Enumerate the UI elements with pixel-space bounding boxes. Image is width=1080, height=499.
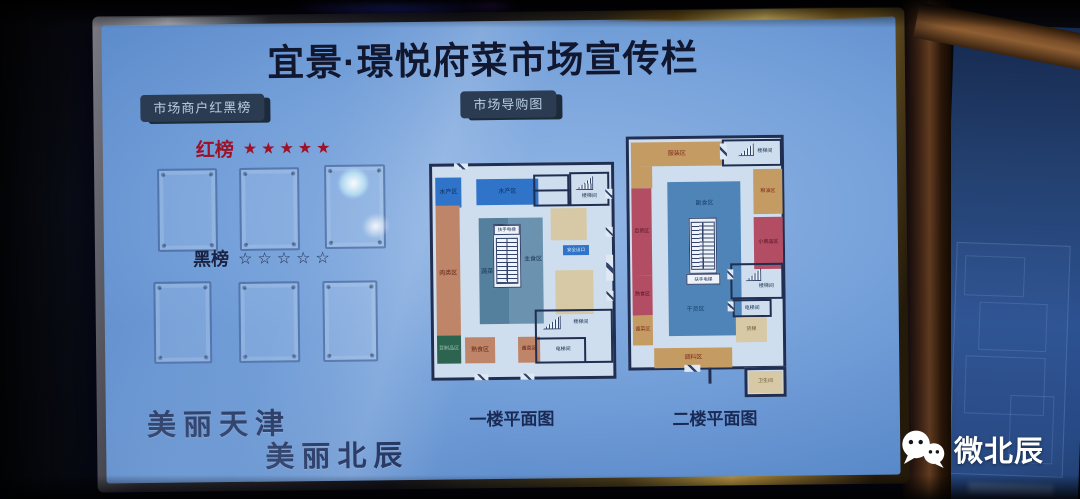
display-slot <box>239 167 300 251</box>
floor2-plan: 服装区 楼梯间 粮油区 小商品区 百货区 熟食区 酱菜区 调料区 副食区 干货区… <box>626 135 791 399</box>
door-marker <box>605 189 612 199</box>
plan-room-cooked-food: 熟食区 <box>632 275 652 315</box>
slogan-beichen: 美丽北辰 <box>265 432 409 476</box>
plan-room-general-goods: 百货区 <box>631 188 652 275</box>
glare-overlay <box>314 159 396 254</box>
display-slot <box>238 281 300 363</box>
watermark: 微北辰 <box>900 428 1044 470</box>
plan-room-toilet: 卫生间 <box>748 371 782 393</box>
plan-room-grain-oil: 粮油区 <box>753 169 783 214</box>
plan-room-label: 主食区 <box>523 254 543 263</box>
watermark-label: 微北辰 <box>954 428 1044 470</box>
door-marker <box>606 291 613 301</box>
plan-room-label: 电梯间 <box>546 345 580 352</box>
door-marker <box>606 227 613 237</box>
plan-room-label: 楼梯间 <box>750 147 780 154</box>
plan-room-freight-lift: 货梯 <box>736 317 767 342</box>
ghost-caption-smudge <box>968 482 1053 496</box>
door-marker <box>520 374 534 380</box>
black-list-stars: ☆☆☆☆☆ <box>238 246 335 268</box>
black-list-label: 黑榜 <box>193 245 229 271</box>
plan-room <box>631 166 652 188</box>
plan-room-label: 楼梯间 <box>751 282 781 289</box>
floor2-caption: 二楼平面图 <box>635 404 795 431</box>
display-slot <box>322 280 378 362</box>
wall <box>708 368 711 384</box>
plan-room-label: 楼梯间 <box>569 192 609 199</box>
plan-room-small-goods: 小商品区 <box>754 217 784 269</box>
guide-map-badge: 市场导购图 <box>460 90 556 118</box>
exit-sign: 安全出口 <box>563 245 589 255</box>
door-marker <box>454 163 468 169</box>
plan-room-cooked-food: 熟食区 <box>465 337 495 363</box>
plan-room-aquatic: 水产区 <box>476 179 538 206</box>
plan-room-tofu: 豆制品区 <box>437 335 461 363</box>
photo-of-bulletin-board: 宜景·璟悦府菜市场宣传栏 市场商户红黑榜 红榜 ★★★★★ 黑榜 ☆☆☆☆☆ 美… <box>0 0 1080 499</box>
board-face: 宜景·璟悦府菜市场宣传栏 市场商户红黑榜 红榜 ★★★★★ 黑榜 ☆☆☆☆☆ 美… <box>101 17 900 484</box>
plan-room <box>555 270 593 314</box>
door-marker <box>606 255 613 281</box>
floor1-caption: 一楼平面图 <box>432 404 592 431</box>
display-slot <box>157 168 218 252</box>
stairs-icon <box>691 222 716 270</box>
door-marker <box>684 365 700 372</box>
board-title: 宜景·璟悦府菜市场宣传栏 <box>233 27 734 87</box>
wood-pillar <box>903 0 951 499</box>
door-marker <box>728 301 734 311</box>
bulletin-board: 宜景·璟悦府菜市场宣传栏 市场商户红黑榜 红榜 ★★★★★ 黑榜 ☆☆☆☆☆ 美… <box>92 7 909 492</box>
plan-room-label: 楼梯间 <box>564 318 598 325</box>
wechat-icon <box>900 429 946 469</box>
plan-room-label: 电梯间 <box>736 304 769 311</box>
escalator-label: 扶手电梯 <box>686 274 720 285</box>
door-marker <box>474 374 488 380</box>
plan-room-aquatic: 水产区 <box>435 177 461 207</box>
plan-room-meat: 肉类区 <box>435 205 461 341</box>
red-list-row: 红榜 ★★★★★ <box>196 134 335 163</box>
plan-room <box>551 208 587 240</box>
escalator-label: 扶手电梯 <box>494 225 520 235</box>
red-list-label: 红榜 <box>196 135 234 162</box>
black-list-row: 黑榜 ☆☆☆☆☆ <box>193 244 335 272</box>
floor1-plan: 水产区 水产区 楼梯间 肉类区 豆制品区 熟食区 酱菜区 蔬菜区 主食区 扶手电… <box>429 162 616 381</box>
display-slot <box>324 164 386 249</box>
red-list-stars: ★★★★★ <box>243 137 335 159</box>
plan-room-label: 干货区 <box>676 304 716 313</box>
door-marker <box>727 269 733 279</box>
stairs-icon <box>496 238 519 284</box>
neon-reflection-purple <box>455 0 525 11</box>
plan-room-label: 副食区 <box>684 197 724 206</box>
plan-room-clothing: 服装区 <box>631 141 723 166</box>
wall <box>533 189 569 191</box>
wall <box>584 337 586 363</box>
red-black-list-badge: 市场商户红黑榜 <box>140 94 264 122</box>
display-slot <box>153 281 212 364</box>
plan-room-pickles: 酱菜区 <box>633 315 653 345</box>
door-marker <box>720 143 727 159</box>
